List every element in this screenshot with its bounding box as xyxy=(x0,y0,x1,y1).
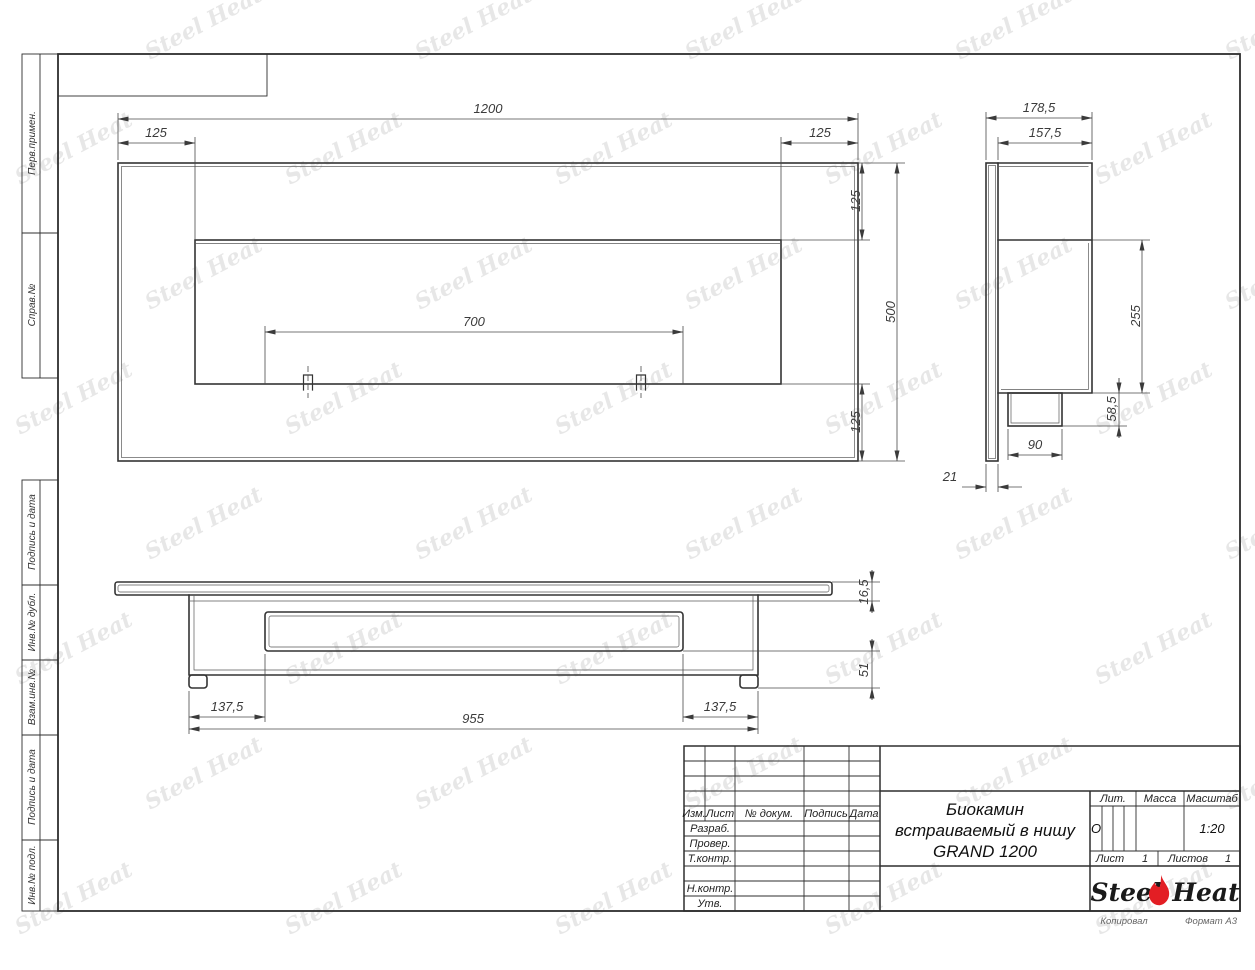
tb-header-data: Дата xyxy=(847,808,878,820)
dim-bottom-body-width: 955 xyxy=(462,711,484,726)
gost-drawing-canvas: Steel Heat Перв.примен. Справ.№ Подпись … xyxy=(0,0,1255,970)
kopiroval-note: Копировал xyxy=(1100,916,1148,927)
dim-front-border-left: 125 xyxy=(145,125,167,140)
drawing-sheet: Steel Heat Перв.примен. Справ.№ Подпись … xyxy=(0,0,1255,970)
burner-tab-left xyxy=(304,366,313,398)
tb-masshtab-label: Масштаб xyxy=(1186,793,1238,805)
dim-bottom-inset-right: 137,5 xyxy=(704,699,737,714)
dim-front-border-top: 125 xyxy=(848,189,863,211)
tb-header-docnum: № докум. xyxy=(745,808,793,820)
dim-front-slot-width: 700 xyxy=(463,314,485,329)
dim-front-width: 1200 xyxy=(474,101,504,116)
tb-massa-label: Масса xyxy=(1144,793,1177,805)
tb-row-prover: Провер. xyxy=(690,838,731,850)
side-burner-block xyxy=(1008,393,1062,426)
document-title: Биокамин встраиваемый в нишу GRAND 1200 xyxy=(895,800,1076,861)
tb-header-list: Лист xyxy=(705,808,734,820)
bottom-body xyxy=(189,595,758,675)
tb-listov-value: 1 xyxy=(1225,853,1231,865)
dim-bottom-panel-thickness: 16,5 xyxy=(856,579,871,605)
sidebar-label-inv-podl: Инв.№ подл. xyxy=(27,845,38,904)
front-view-dimensions: 1200 125 125 700 125 125 500 xyxy=(118,101,905,461)
title-line-3: GRAND 1200 xyxy=(933,842,1037,861)
tb-listov-label: Листов xyxy=(1167,853,1208,865)
tb-row-tkontr: Т.контр. xyxy=(688,853,732,865)
format-note: Формат А3 xyxy=(1185,916,1238,927)
top-left-stamp-box xyxy=(58,54,267,96)
dim-front-border-bottom: 125 xyxy=(848,410,863,432)
tb-header-izm: Изм. xyxy=(682,808,705,820)
front-view: 1200 125 125 700 125 125 500 xyxy=(118,101,905,461)
sidebar-label-vzam-inv: Взам.инв.№ xyxy=(27,669,38,725)
tb-masshtab-value: 1:20 xyxy=(1199,821,1225,836)
tb-row-razrab: Разраб. xyxy=(690,823,730,835)
dim-side-burner-height: 58,5 xyxy=(1104,396,1119,422)
sidebar-label-podpis-data-2: Подпись и дата xyxy=(27,749,38,825)
dim-front-border-right: 125 xyxy=(809,125,831,140)
title-line-1: Биокамин xyxy=(946,800,1025,819)
tb-list-value: 1 xyxy=(1142,853,1148,865)
front-outer-panel xyxy=(118,163,858,461)
tb-lit-label: Лит. xyxy=(1099,793,1126,805)
tb-list-label: Лист xyxy=(1095,853,1124,865)
sidebar-label-inv-dubl: Инв.№ дубл. xyxy=(26,593,38,652)
sidebar-label-sprav-no: Справ.№ xyxy=(27,283,38,326)
dim-side-panel-thickness: 21 xyxy=(942,469,957,484)
bottom-foot-right xyxy=(740,675,758,688)
sidebar-label-podpis-data-1: Подпись и дата xyxy=(27,494,38,570)
watermark-layer xyxy=(11,0,1255,940)
bottom-foot-left xyxy=(189,675,207,688)
dim-side-burner-width: 90 xyxy=(1028,437,1043,452)
tb-lit-value: О xyxy=(1091,821,1101,836)
dim-side-box-height: 255 xyxy=(1128,304,1143,327)
dim-bottom-inset-left: 137,5 xyxy=(211,699,244,714)
dim-front-height: 500 xyxy=(883,300,898,322)
side-front-panel xyxy=(986,163,998,461)
sidebar-label-perv-primen: Перв.примен. xyxy=(27,111,38,175)
dim-side-depth-inner: 157,5 xyxy=(1029,125,1062,140)
tb-header-podpis: Подпись xyxy=(804,808,848,820)
bottom-view: 16,5 51 137,5 137,5 955 xyxy=(115,570,880,734)
title-line-2: встраиваемый в нишу xyxy=(895,821,1076,840)
bottom-front-panel xyxy=(115,582,832,595)
dim-side-depth-overall: 178,5 xyxy=(1023,100,1056,115)
dim-bottom-foot-height: 51 xyxy=(856,663,871,677)
logo-word-heat: Heat xyxy=(1171,878,1240,907)
tb-row-utv: Утв. xyxy=(697,898,723,910)
footer-notes: Копировал Формат А3 xyxy=(1100,916,1237,927)
tb-row-nkontr: Н.контр. xyxy=(687,883,734,895)
